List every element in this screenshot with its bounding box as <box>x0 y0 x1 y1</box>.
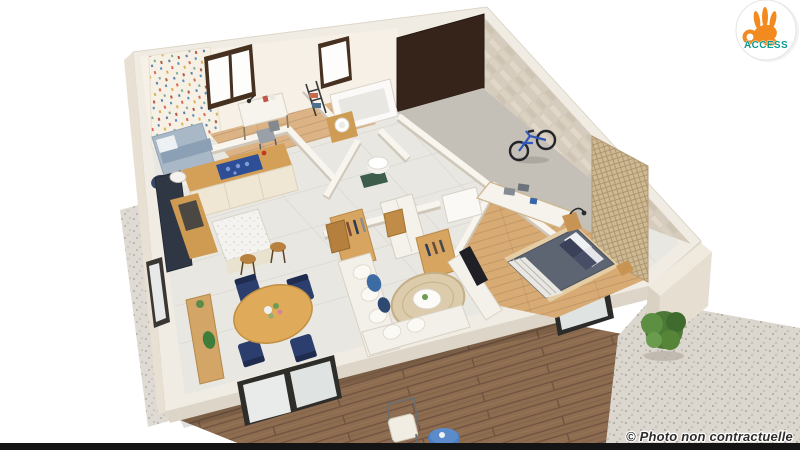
shrub <box>641 311 686 361</box>
scene-svg: ACCESS © Photo non contractuelle <box>0 0 800 450</box>
hall-door-wood-2 <box>384 209 406 237</box>
window-hall <box>318 36 352 89</box>
stand-mixer <box>170 172 186 183</box>
coffee-table <box>413 289 441 309</box>
floor-plan-render: ACCESS © Photo non contractuelle <box>0 0 800 450</box>
watermark-text: © Photo non contractuelle <box>626 429 793 444</box>
coffee-machine <box>262 151 267 156</box>
logo-text: ACCESS <box>744 40 788 51</box>
bottom-bar <box>0 443 800 450</box>
